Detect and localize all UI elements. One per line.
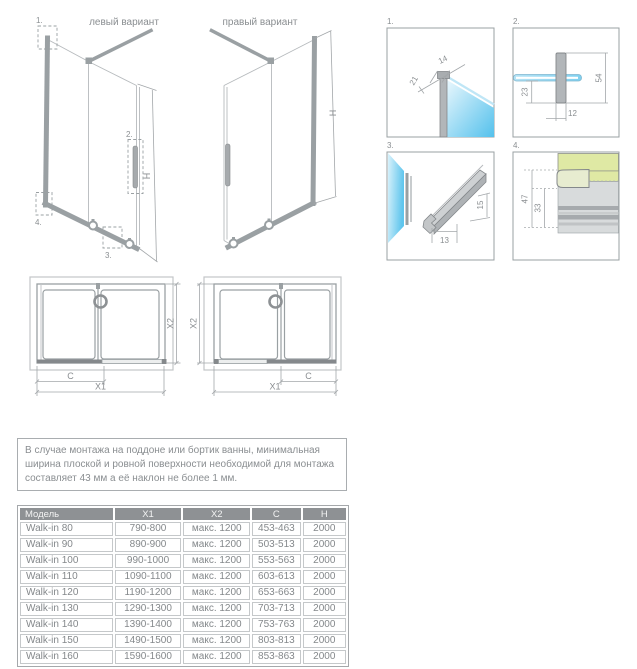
plan-left: C X1 X2: [30, 277, 181, 396]
right-variant-drawing: правый вариант H: [212, 17, 339, 248]
dim-54: 54: [595, 73, 604, 82]
detail-1-wall-profile: 1. 21 14: [387, 17, 494, 137]
cell-h: 2000: [303, 522, 346, 536]
cell-h: 2000: [303, 554, 346, 568]
cell-c: 553-563: [252, 554, 300, 568]
callout-2: 2.: [126, 130, 133, 139]
cell-h: 2000: [303, 570, 346, 584]
cell-x1: 1590-1600: [115, 650, 182, 664]
dim-c: C: [305, 371, 312, 381]
table-row: Walk-in 110 1090-1100 макс. 1200 603-613…: [20, 570, 346, 584]
left-variant-drawing: левый вариант 1. 2. 3. 4.: [35, 16, 159, 262]
cell-x2: макс. 1200: [183, 570, 250, 584]
cell-x2: макс. 1200: [183, 538, 250, 552]
detail-3-bottom-rail: 3. 13 15: [387, 141, 494, 260]
table-row: Walk-in 140 1390-1400 макс. 1200 753-763…: [20, 618, 346, 632]
glass-clamp: [86, 58, 93, 65]
cell-h: 2000: [303, 586, 346, 600]
table-row: Walk-in 80 790-800 макс. 1200 453-463 20…: [20, 522, 346, 536]
dim-15: 15: [476, 200, 485, 209]
cell-x1: 1490-1500: [115, 634, 182, 648]
dim-x1: X1: [95, 382, 106, 392]
glass-clamp: [268, 58, 275, 65]
cell-h: 2000: [303, 602, 346, 616]
walkin-size-table: Модель X1 X2 C H Walk-in 80 790-800 макс…: [18, 506, 348, 666]
spec-table: Модель X1 X2 C H Walk-in 80 790-800 макс…: [17, 505, 349, 667]
cell-model: Walk-in 120: [20, 586, 113, 600]
cell-x2: макс. 1200: [183, 618, 250, 632]
cell-c: 753-763: [252, 618, 300, 632]
cell-c: 653-663: [252, 586, 300, 600]
cell-c: 453-463: [252, 522, 300, 536]
callout-3: 3.: [105, 251, 112, 260]
cell-x2: макс. 1200: [183, 554, 250, 568]
roller-icon: [126, 240, 134, 248]
roller-icon: [230, 240, 238, 248]
dim-c: C: [67, 371, 74, 381]
dim-12: 12: [568, 109, 577, 118]
dim-x1: X1: [269, 382, 280, 392]
col-h: H: [303, 508, 346, 520]
cell-x2: макс. 1200: [183, 602, 250, 616]
dim-47: 47: [521, 194, 530, 203]
cell-c: 603-613: [252, 570, 300, 584]
table-row: Walk-in 150 1490-1500 макс. 1200 803-813…: [20, 634, 346, 648]
dim-23: 23: [521, 87, 530, 96]
cell-model: Walk-in 80: [20, 522, 113, 536]
table-row: Walk-in 120 1190-1200 макс. 1200 653-663…: [20, 586, 346, 600]
wall-profile: [440, 78, 447, 137]
cell-x1: 790-800: [115, 522, 182, 536]
cell-x2: макс. 1200: [183, 650, 250, 664]
handle-bar: [133, 146, 138, 188]
cell-model: Walk-in 150: [20, 634, 113, 648]
dim-13: 13: [440, 236, 449, 245]
cell-model: Walk-in 130: [20, 602, 113, 616]
detail-2-number: 2.: [513, 17, 520, 26]
col-model: Модель: [20, 508, 113, 520]
plan-views: C X1 X2 C: [0, 270, 360, 405]
plan-right: C X1 X2: [189, 277, 342, 396]
detail-4-tray-section: 4. 47 33: [513, 141, 619, 260]
cell-model: Walk-in 160: [20, 650, 113, 664]
cell-c: 803-813: [252, 634, 300, 648]
cell-x2: макс. 1200: [183, 634, 250, 648]
detail-1-number: 1.: [387, 17, 394, 26]
detail-3-number: 3.: [387, 141, 394, 150]
installation-note-text: В случае монтажа на поддоне или бортик в…: [25, 445, 334, 484]
callout-4: 4.: [35, 218, 42, 227]
glass-holder-tongue: [557, 170, 589, 188]
cell-x1: 1090-1100: [115, 570, 182, 584]
detail-2-handle-section: 2. 54 23 12: [513, 17, 619, 137]
cell-c: 503-513: [252, 538, 300, 552]
col-x1: X1: [115, 508, 182, 520]
cell-x1: 1190-1200: [115, 586, 182, 600]
cell-model: Walk-in 110: [20, 570, 113, 584]
perspective-drawings: левый вариант 1. 2. 3. 4.: [0, 0, 380, 270]
bottom-rail: [267, 360, 336, 364]
cell-c: 703-713: [252, 602, 300, 616]
callout-1: 1.: [36, 16, 43, 25]
catalog-page: левый вариант 1. 2. 3. 4.: [0, 0, 637, 669]
dim-h: H: [142, 173, 152, 180]
cell-x2: макс. 1200: [183, 586, 250, 600]
bottom-rail: [37, 360, 102, 364]
cell-h: 2000: [303, 634, 346, 648]
handle-bar: [226, 144, 231, 186]
cell-h: 2000: [303, 650, 346, 664]
detail-4-number: 4.: [513, 141, 520, 150]
roller-icon: [89, 222, 97, 230]
detail-views: 1. 21 14 2. 54 23: [380, 0, 637, 270]
cell-model: Walk-in 100: [20, 554, 113, 568]
installation-note: В случае монтажа на поддоне или бортик в…: [17, 438, 347, 491]
table-row: Walk-in 160 1590-1600 макс. 1200 853-863…: [20, 650, 346, 664]
cell-model: Walk-in 140: [20, 618, 113, 632]
cell-h: 2000: [303, 538, 346, 552]
table-row: Walk-in 100 990-1000 макс. 1200 553-563 …: [20, 554, 346, 568]
roller-icon: [265, 221, 273, 229]
cell-x1: 890-900: [115, 538, 182, 552]
col-c: C: [252, 508, 300, 520]
table-row: Walk-in 130 1290-1300 макс. 1200 703-713…: [20, 602, 346, 616]
col-x2: X2: [183, 508, 250, 520]
cell-h: 2000: [303, 618, 346, 632]
dim-x2: X2: [166, 318, 176, 329]
cell-model: Walk-in 90: [20, 538, 113, 552]
cell-x1: 1290-1300: [115, 602, 182, 616]
table-row: Walk-in 90 890-900 макс. 1200 503-513 20…: [20, 538, 346, 552]
right-variant-title: правый вариант: [223, 17, 298, 28]
cell-c: 853-863: [252, 650, 300, 664]
table-header-row: Модель X1 X2 C H: [20, 508, 346, 520]
tray-surface: [558, 154, 619, 172]
dim-x2: X2: [189, 318, 199, 329]
dim-h: H: [328, 110, 338, 117]
handle-bar: [556, 53, 566, 103]
dim-33: 33: [534, 203, 543, 212]
cell-x2: макс. 1200: [183, 522, 250, 536]
cell-x1: 990-1000: [115, 554, 182, 568]
left-variant-title: левый вариант: [89, 17, 159, 28]
cell-x1: 1390-1400: [115, 618, 182, 632]
